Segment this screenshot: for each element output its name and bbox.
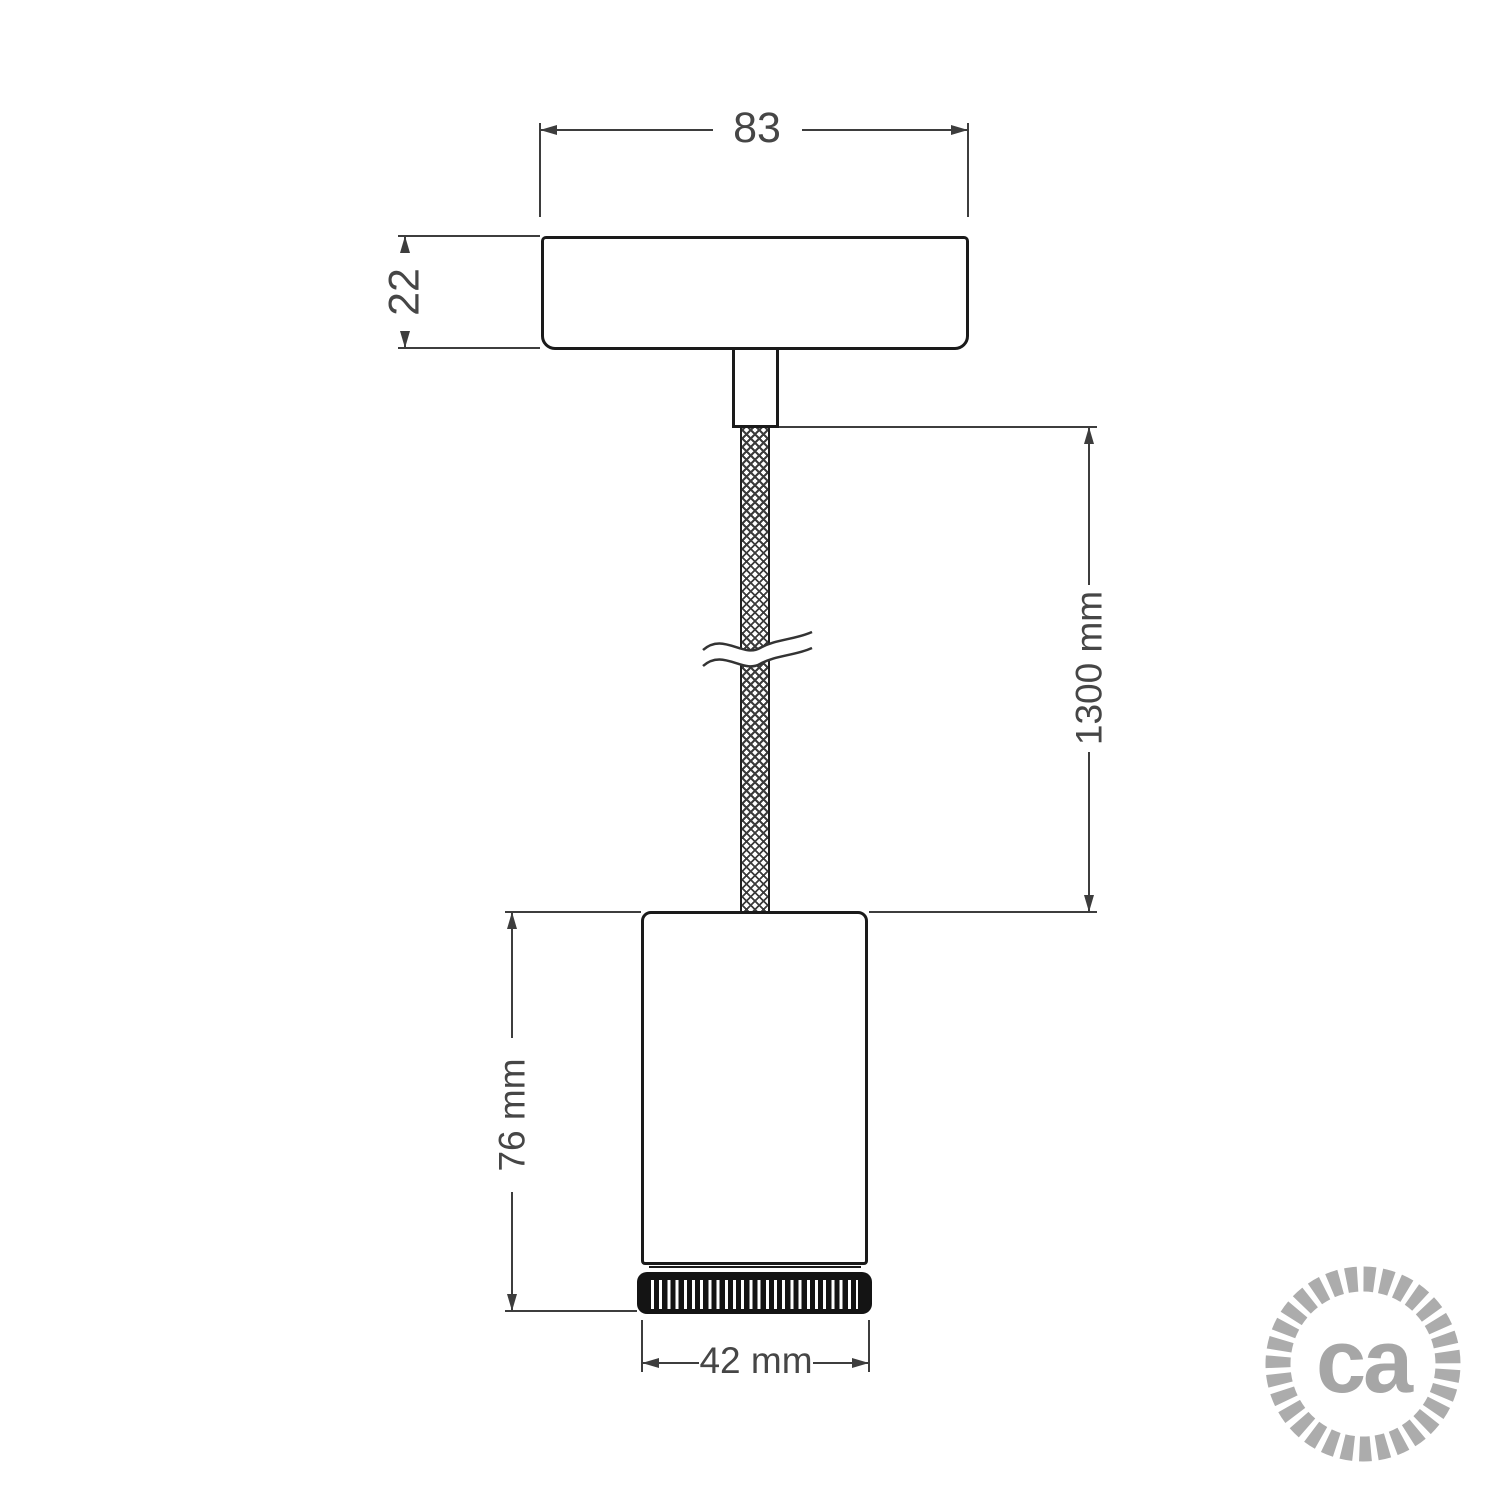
logo-text: ca bbox=[1263, 1264, 1463, 1464]
cable-break-symbol bbox=[698, 618, 818, 678]
dim-label-spot-diameter: 42 mm bbox=[699, 1342, 812, 1379]
knurled-ring-slots bbox=[651, 1280, 858, 1309]
dim-label-cable-length: 1300 mm bbox=[1071, 591, 1108, 745]
dim-label-canopy-height: 22 bbox=[384, 268, 427, 316]
dim-label-spot-height: 76 mm bbox=[494, 1058, 531, 1171]
technical-drawing-page: 83 22 1300 mm 76 mm 42 mm ca bbox=[0, 0, 1500, 1500]
spotlight-body bbox=[641, 911, 868, 1265]
spotlight-lip-line bbox=[649, 1266, 861, 1268]
cable-grip-stem bbox=[732, 350, 779, 428]
dim-label-canopy-width: 83 bbox=[733, 107, 781, 150]
knurled-ring bbox=[637, 1272, 872, 1314]
brand-logo: ca bbox=[1263, 1264, 1463, 1464]
ceiling-canopy bbox=[541, 236, 969, 350]
